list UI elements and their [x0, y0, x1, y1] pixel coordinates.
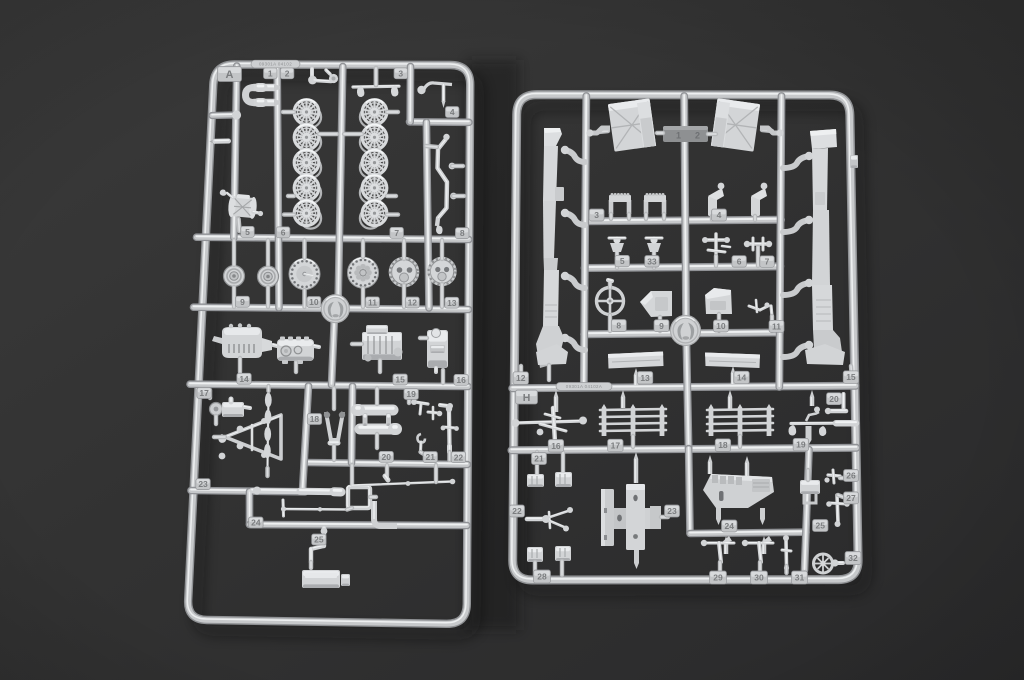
svg-text:23: 23: [667, 506, 677, 516]
svg-text:5: 5: [245, 227, 250, 237]
svg-text:1: 1: [676, 131, 681, 141]
svg-text:10: 10: [309, 297, 319, 307]
svg-text:A: A: [226, 69, 234, 81]
svg-text:25: 25: [314, 535, 324, 545]
svg-text:33: 33: [647, 256, 657, 266]
svg-text:17: 17: [199, 388, 209, 398]
svg-text:19: 19: [796, 440, 806, 450]
svg-text:6: 6: [737, 256, 742, 266]
svg-text:1: 1: [268, 68, 273, 78]
svg-text:12: 12: [516, 373, 526, 383]
svg-text:32: 32: [848, 553, 858, 563]
svg-text:29: 29: [713, 573, 723, 583]
svg-text:4: 4: [450, 107, 455, 117]
svg-text:7: 7: [394, 228, 399, 238]
svg-text:16: 16: [456, 375, 466, 385]
svg-text:17: 17: [611, 441, 621, 451]
svg-text:5: 5: [620, 256, 625, 266]
svg-text:22: 22: [454, 452, 464, 462]
svg-text:8: 8: [460, 228, 465, 238]
svg-text:31: 31: [795, 573, 805, 583]
svg-text:24: 24: [251, 518, 261, 528]
svg-text:3: 3: [398, 68, 403, 78]
svg-text:26: 26: [846, 471, 856, 481]
svg-text:2: 2: [695, 131, 700, 141]
svg-text:20: 20: [829, 394, 839, 404]
svg-text:28: 28: [537, 572, 547, 582]
svg-text:8: 8: [616, 321, 621, 331]
svg-text:27: 27: [846, 493, 856, 503]
svg-text:20: 20: [382, 452, 392, 462]
svg-text:6: 6: [281, 227, 286, 237]
svg-text:23: 23: [198, 479, 208, 489]
svg-text:11: 11: [368, 297, 377, 307]
svg-text:09301A 04102A: 09301A 04102A: [566, 384, 602, 389]
svg-text:H: H: [523, 392, 531, 404]
svg-text:21: 21: [534, 454, 544, 464]
svg-text:7: 7: [765, 257, 770, 267]
svg-text:15: 15: [846, 372, 856, 382]
svg-text:12: 12: [408, 298, 418, 308]
svg-text:13: 13: [447, 298, 457, 308]
svg-text:30: 30: [754, 573, 764, 583]
svg-text:11: 11: [772, 321, 781, 331]
svg-text:09301A 04102: 09301A 04102: [259, 62, 292, 67]
svg-text:2: 2: [285, 68, 290, 78]
svg-text:14: 14: [737, 373, 747, 383]
svg-text:14: 14: [239, 374, 249, 384]
svg-text:18: 18: [718, 440, 728, 450]
svg-text:4: 4: [717, 210, 722, 220]
svg-text:16: 16: [551, 441, 561, 451]
svg-text:13: 13: [640, 373, 650, 383]
svg-text:9: 9: [240, 297, 245, 307]
svg-text:19: 19: [406, 389, 416, 399]
svg-text:3: 3: [594, 210, 599, 220]
svg-text:9: 9: [659, 321, 664, 331]
svg-text:22: 22: [512, 506, 522, 516]
svg-text:10: 10: [716, 321, 726, 331]
svg-text:15: 15: [395, 375, 405, 385]
svg-text:18: 18: [310, 414, 320, 424]
svg-text:21: 21: [426, 452, 436, 462]
svg-text:24: 24: [725, 521, 735, 531]
svg-text:25: 25: [816, 521, 826, 531]
